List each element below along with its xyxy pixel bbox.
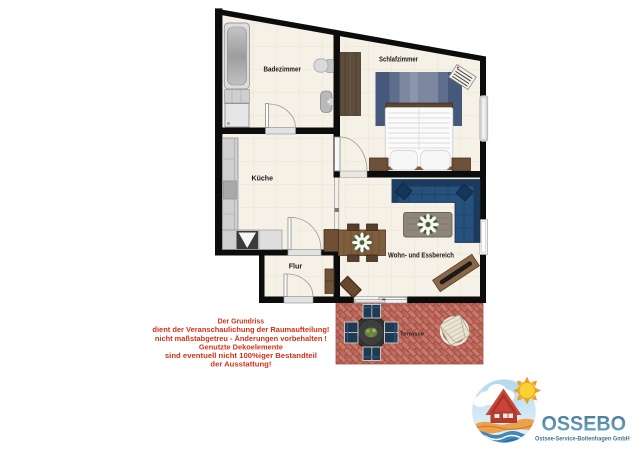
svg-text:Schlafzimmer: Schlafzimmer — [379, 55, 418, 64]
svg-text:Badezimmer: Badezimmer — [264, 65, 302, 74]
svg-text:OSSEBO: OSSEBO — [542, 410, 627, 435]
svg-text:der Ausstattung!: der Ausstattung! — [210, 360, 271, 369]
svg-text:Flur: Flur — [289, 261, 303, 270]
svg-text:Ostsee-Service-Boltenhagen Gmb: Ostsee-Service-Boltenhagen GmbH — [535, 435, 630, 442]
svg-text:Wohn- und Essbereich: Wohn- und Essbereich — [388, 251, 454, 260]
svg-text:Terrasse: Terrasse — [400, 332, 425, 338]
svg-text:Küche: Küche — [252, 174, 274, 183]
